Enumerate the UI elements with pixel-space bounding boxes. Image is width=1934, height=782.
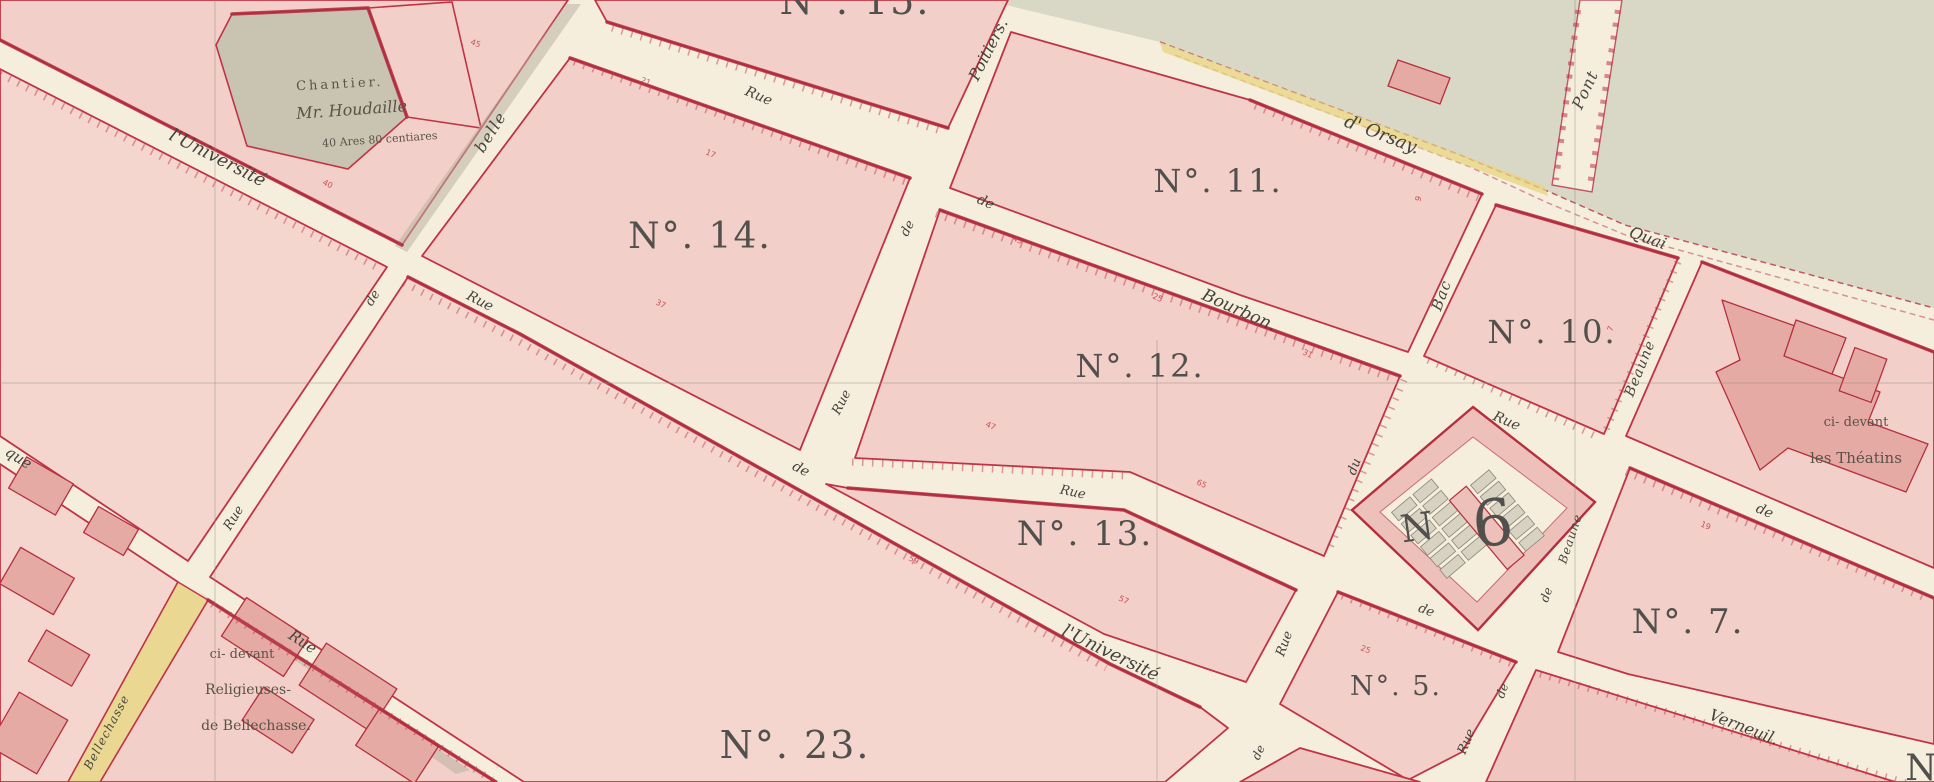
street-label-rue-poitiers: Rue: [829, 387, 855, 418]
historic-map-canvas[interactable]: N°. 15. N°. 14. N°. 11. N°. 12. N°. 10. …: [0, 0, 1934, 782]
block-number-partial-right-edge: N: [1905, 748, 1934, 782]
religieuses-label-line2: Religieuses-: [205, 682, 291, 698]
street-label-de-verneuil-mid: de: [1416, 601, 1436, 621]
street-label-rue-bac: Rue: [1273, 629, 1296, 660]
street-label-rue-verneuil-west: Rue: [1058, 482, 1088, 502]
street-label-de-bac-south: de: [1249, 743, 1268, 762]
block-number-10: N°. 10.: [1487, 313, 1616, 351]
block-number-23: N°. 23.: [720, 723, 871, 767]
religieuses-label-line3: de Bellechasse.: [201, 718, 311, 734]
block-number-7: N°. 7.: [1632, 602, 1745, 642]
street-label-de-beaune-lane: de: [1537, 585, 1555, 604]
street-label-de-bourbon-east: de: [1753, 501, 1775, 522]
block-number-13: N°. 13.: [1017, 514, 1153, 554]
block-number-15: N°. 15.: [780, 0, 931, 23]
theatins-label-line2: les Théatins: [1810, 449, 1902, 467]
block-number-14: N°. 14.: [628, 216, 772, 257]
block-number-5: N°. 5.: [1350, 671, 1442, 702]
street-label-rue-bourbon: Rue: [742, 83, 775, 109]
block-number-11: N°. 11.: [1153, 162, 1282, 200]
map-viewport[interactable]: N°. 15. N°. 14. N°. 11. N°. 12. N°. 10. …: [0, 0, 1934, 782]
street-label-de-universite-mid: de: [789, 458, 812, 480]
street-label-de-poitiers: de: [898, 218, 919, 239]
block-number-6-digit: 6: [1469, 485, 1519, 563]
theatins-label-line1: ci- devant: [1824, 415, 1889, 430]
block-number-6-n: N: [1398, 503, 1439, 551]
block-number-12: N°. 12.: [1075, 347, 1204, 385]
religieuses-label-line1: ci- devant: [210, 647, 275, 662]
